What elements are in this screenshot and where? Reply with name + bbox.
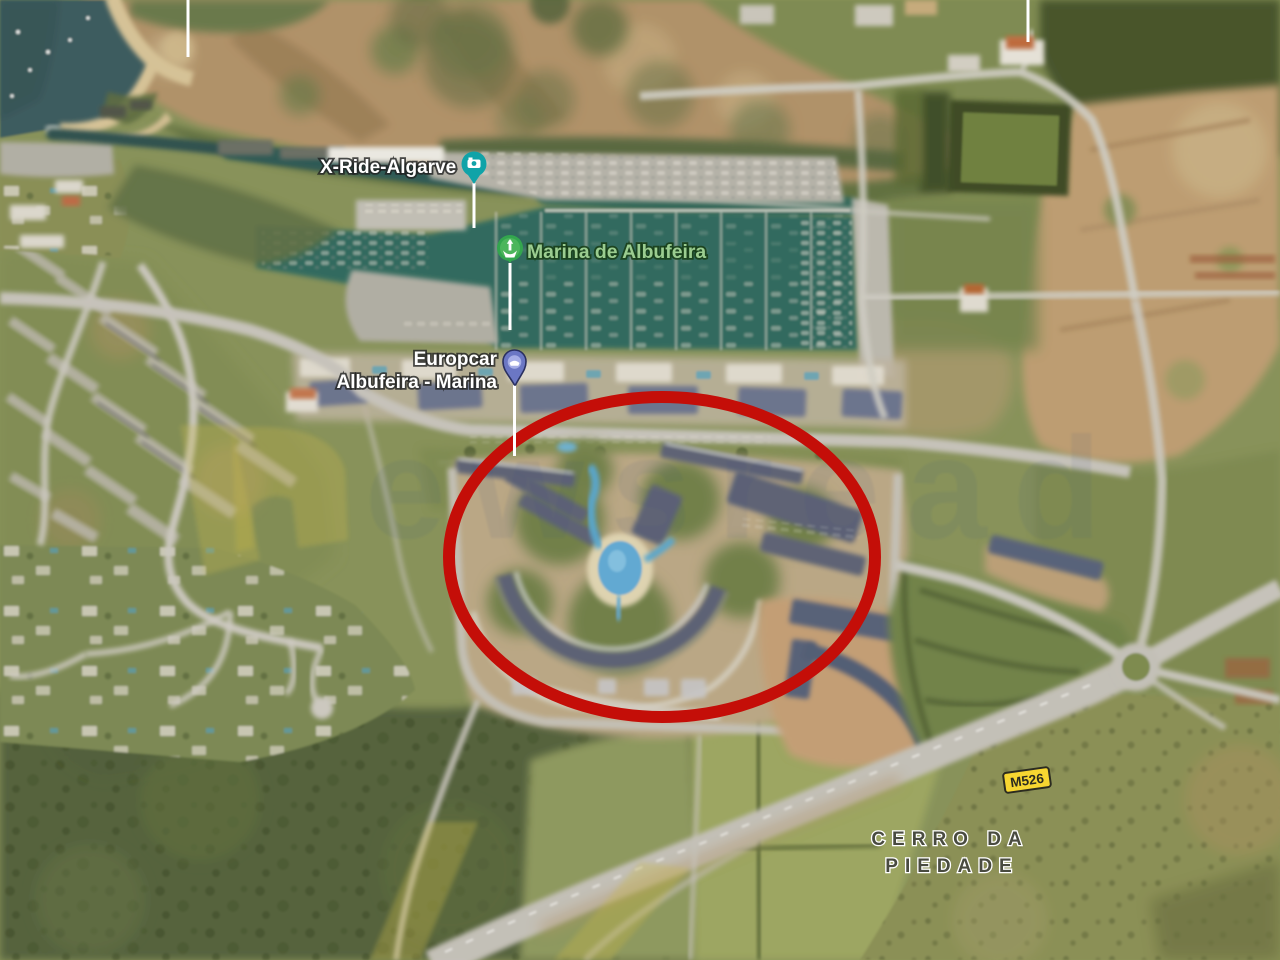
svg-text:PIEDADE: PIEDADE	[885, 856, 1018, 877]
svg-text:Marina de Albufeira: Marina de Albufeira	[527, 241, 706, 263]
svg-text:Albufeira - Marina: Albufeira - Marina	[337, 372, 498, 393]
svg-text:CERRO DA: CERRO DA	[871, 829, 1028, 850]
svg-text:X-Ride-Algarve: X-Ride-Algarve	[320, 157, 456, 178]
svg-text:Europcar: Europcar	[414, 349, 498, 370]
